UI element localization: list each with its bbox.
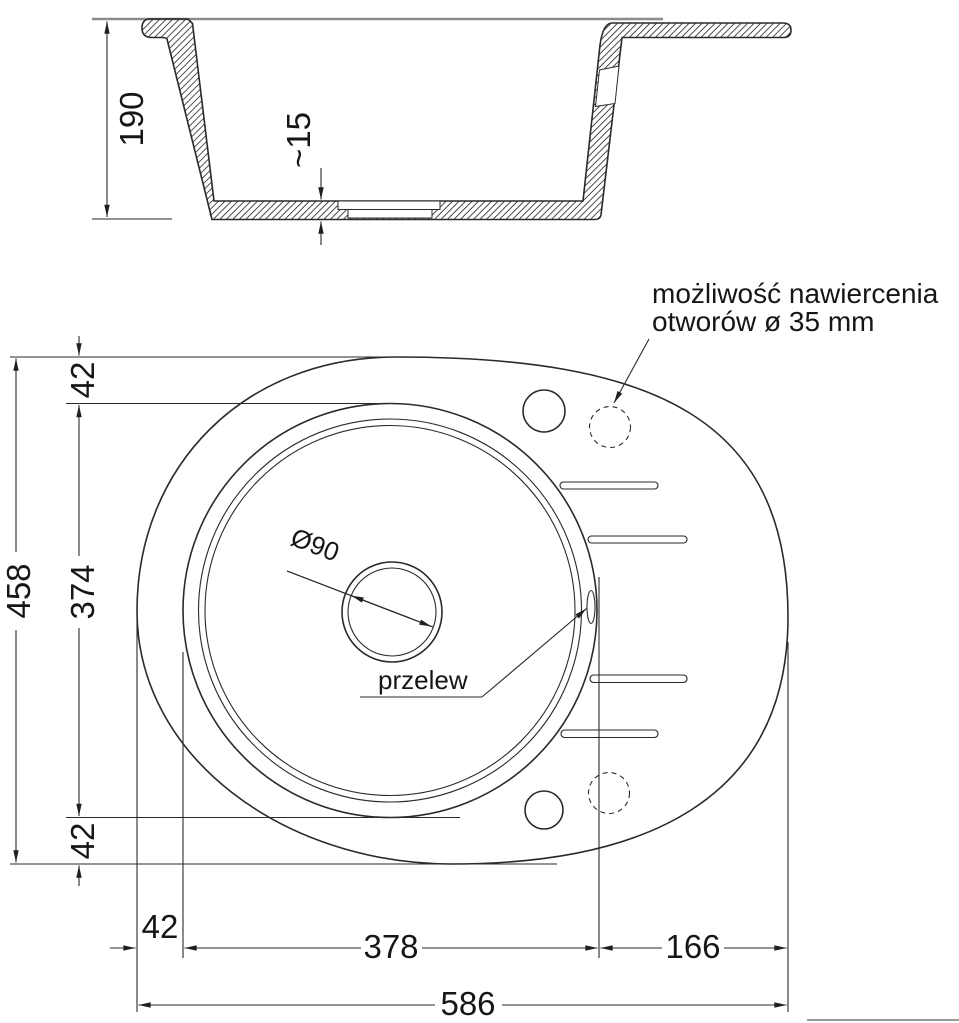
drain-outer — [342, 562, 442, 662]
rib-1 — [560, 482, 658, 489]
dim-586-label: 586 — [440, 985, 495, 1022]
sink-technical-drawing: 190 ~15 — [0, 0, 959, 1023]
faucet-hole-bottom — [525, 791, 563, 829]
drill-note-annotation: możliwość nawiercenia otworów ø 35 mm — [614, 278, 939, 403]
overflow-gap — [596, 66, 620, 107]
dim-378-label: 378 — [363, 928, 418, 965]
rib-4 — [561, 730, 658, 738]
dim-374-label: 374 — [64, 564, 101, 619]
dim-drain-label: Ø90 — [287, 522, 344, 568]
dim-166-label: 166 — [665, 928, 720, 965]
cross-section-view: 190 ~15 — [92, 19, 791, 245]
section-body — [142, 19, 791, 220]
drainer-ribs — [560, 482, 687, 738]
dim-bottom-thickness: ~15 — [280, 112, 321, 245]
drawing-canvas: 190 ~15 — [0, 0, 959, 1023]
dim-458-label: 458 — [0, 563, 37, 618]
drill-note-line1: możliwość nawiercenia — [652, 278, 939, 309]
rib-2 — [588, 536, 687, 543]
plan-view: Ø90 przelew możliwość nawiercenia otworó… — [0, 278, 939, 1022]
optional-hole-top — [590, 407, 631, 448]
optional-hole-bottom — [589, 773, 630, 814]
dim-42-bottom-label: 42 — [64, 823, 101, 860]
overflow-annotation: przelew — [360, 609, 587, 698]
dim-190-label: 190 — [113, 91, 150, 146]
faucet-hole-top — [523, 390, 565, 432]
vertical-dimensions: 458 42 374 42 — [0, 336, 557, 886]
dim-section-height: 190 — [92, 22, 172, 220]
drain-inner — [348, 568, 436, 656]
rib-3 — [590, 675, 687, 683]
overflow-slot — [587, 591, 595, 624]
overflow-label: przelew — [378, 665, 468, 695]
horizontal-dimensions: 42 378 166 586 — [110, 577, 788, 1022]
dim-15-label: ~15 — [280, 112, 317, 168]
drain-recess — [338, 201, 440, 218]
dim-42-width-label: 42 — [142, 908, 179, 945]
drill-note-line2: otworów ø 35 mm — [652, 306, 875, 337]
dim-42-top-label: 42 — [64, 362, 101, 399]
